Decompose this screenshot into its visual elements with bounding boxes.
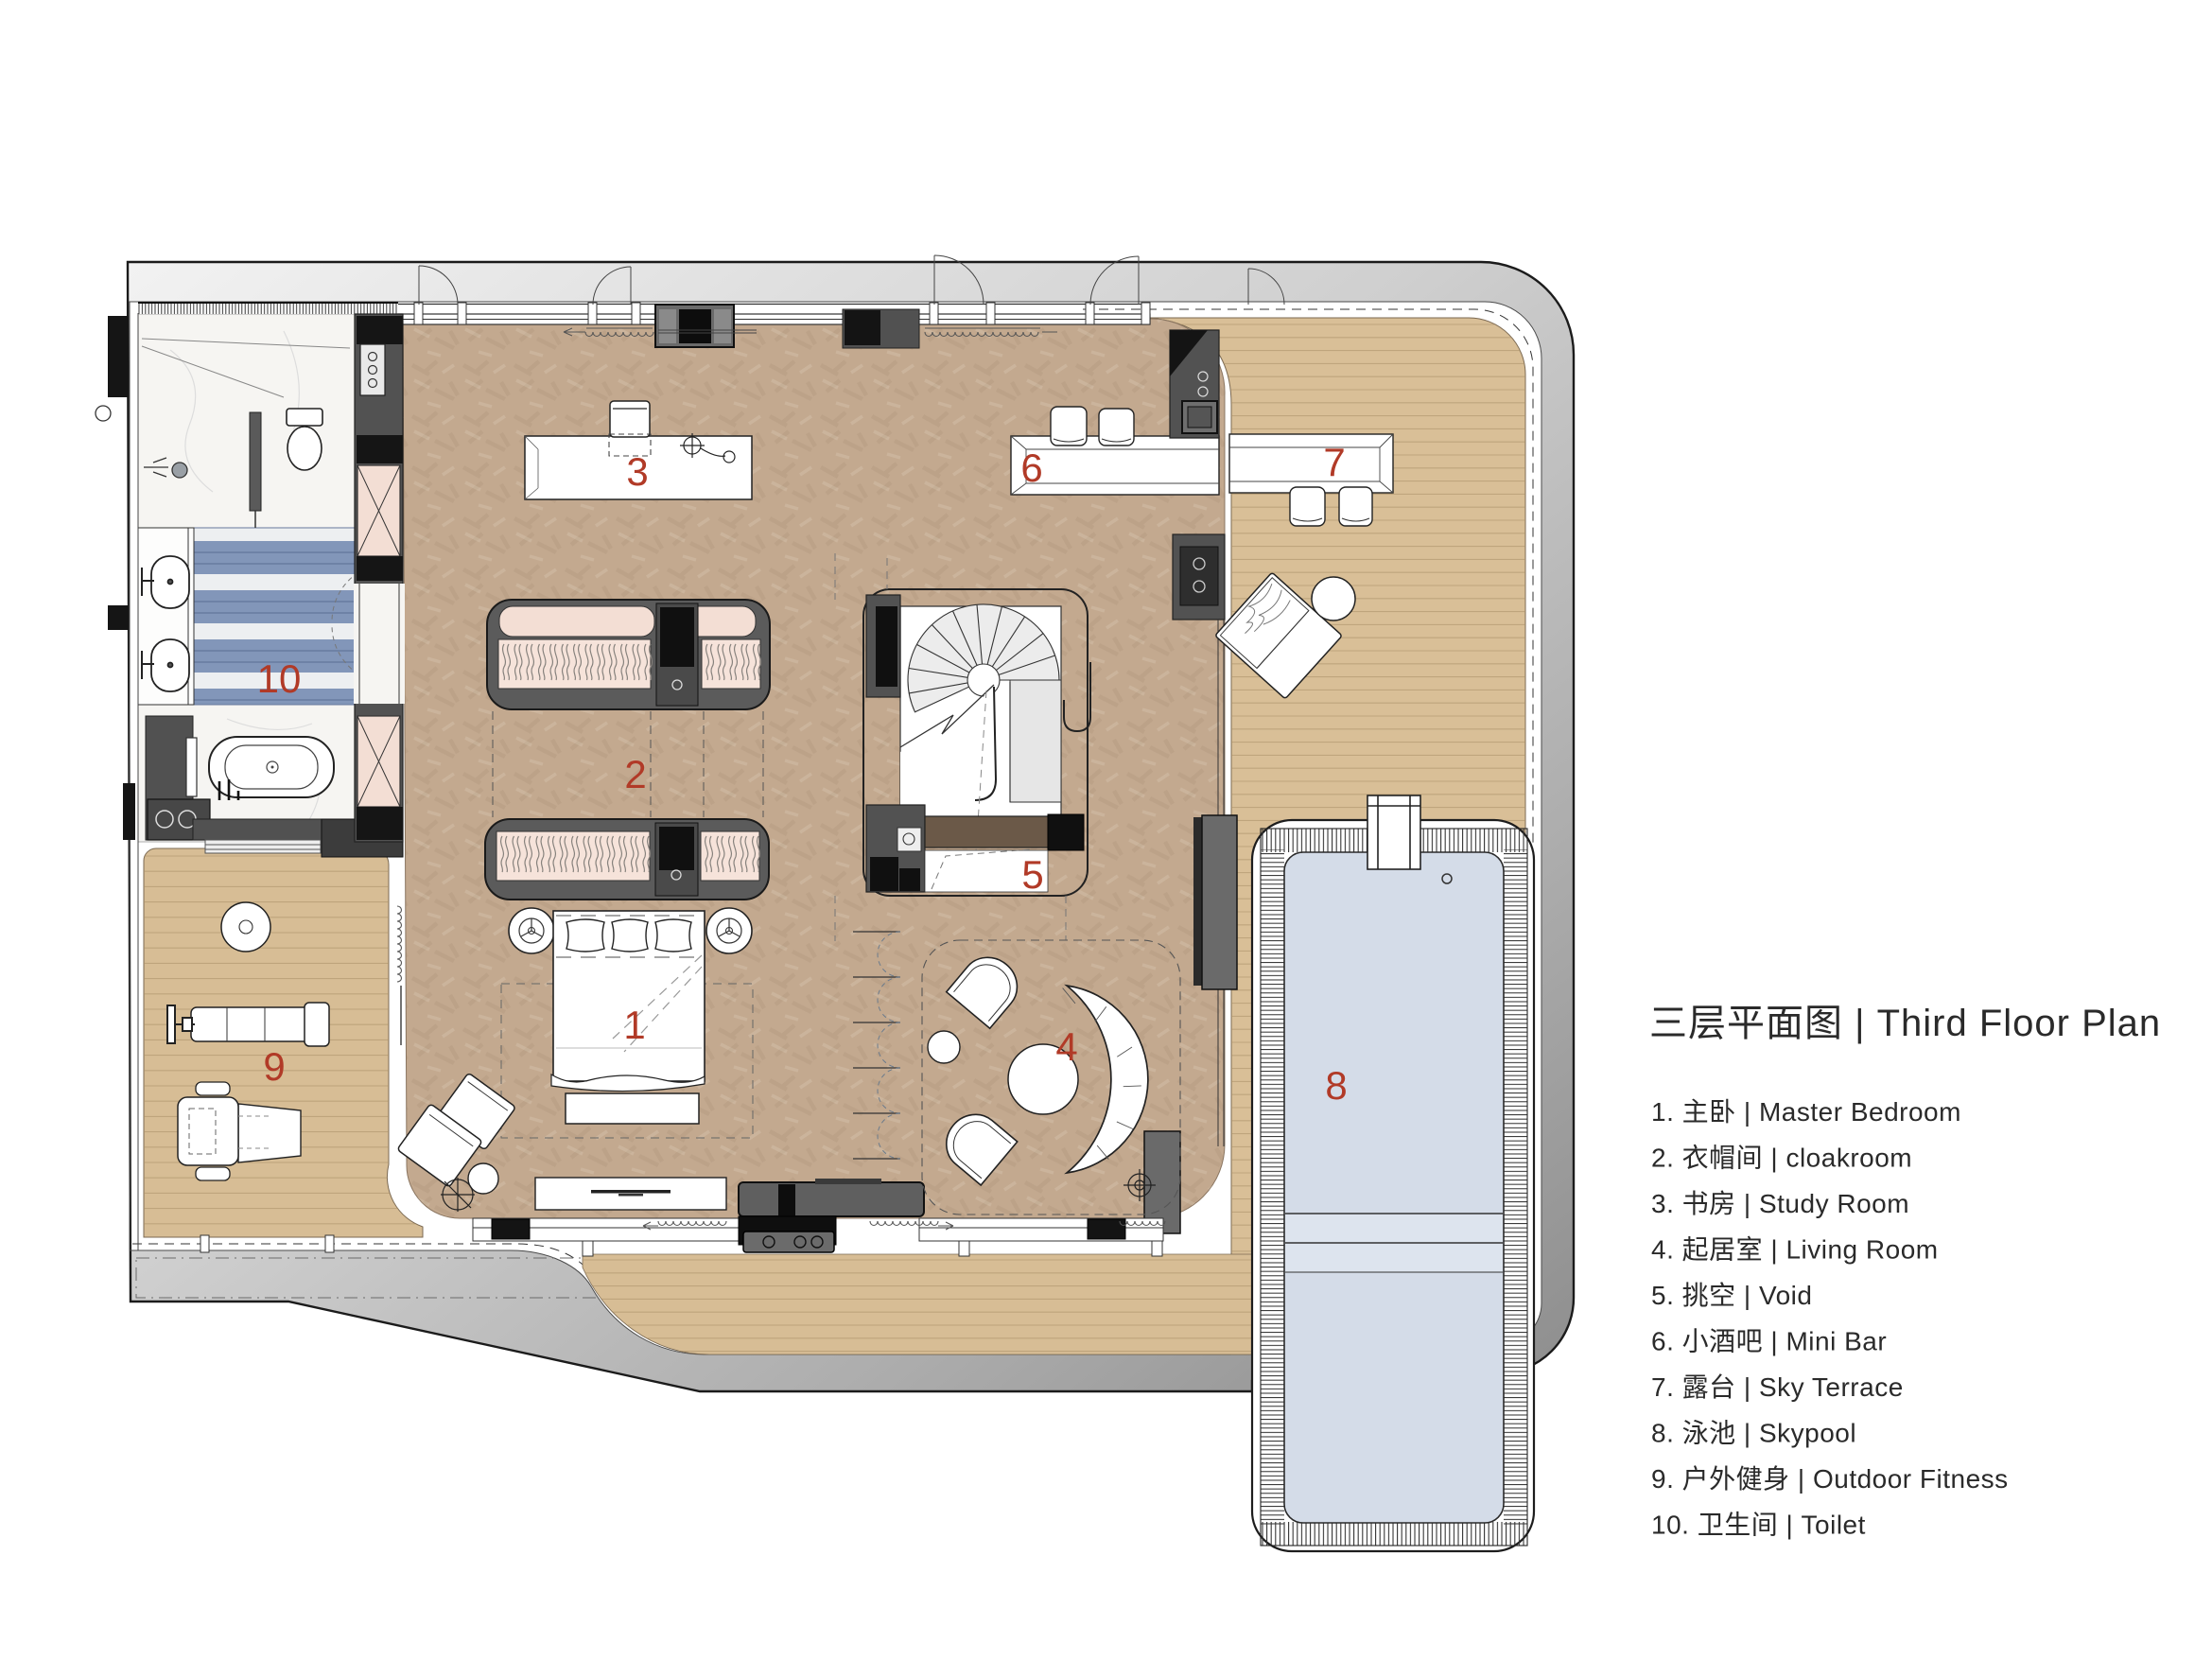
svg-text:3: 3 — [626, 449, 648, 494]
svg-text:5: 5 — [1021, 852, 1043, 897]
svg-text:1: 1 — [623, 1003, 645, 1047]
svg-text:10: 10 — [257, 656, 302, 701]
svg-text:3. 书房 | Study Room: 3. 书房 | Study Room — [1651, 1189, 1909, 1218]
svg-text:7. 露台 | Sky Terrace: 7. 露台 | Sky Terrace — [1651, 1372, 1904, 1402]
svg-text:5. 挑空 | Void: 5. 挑空 | Void — [1651, 1281, 1812, 1310]
svg-text:4. 起居室 | Living Room: 4. 起居室 | Living Room — [1651, 1235, 1939, 1265]
svg-text:8: 8 — [1325, 1063, 1347, 1108]
svg-text:9: 9 — [263, 1044, 285, 1089]
svg-text:10. 卫生间 | Toilet: 10. 卫生间 | Toilet — [1651, 1511, 1866, 1540]
svg-text:6: 6 — [1020, 446, 1042, 490]
svg-text:7: 7 — [1323, 440, 1345, 484]
svg-text:2. 衣帽间 | cloakroom: 2. 衣帽间 | cloakroom — [1651, 1144, 1912, 1173]
svg-text:8. 泳池 | Skypool: 8. 泳池 | Skypool — [1651, 1419, 1856, 1448]
svg-text:9. 户外健身 | Outdoor Fitness: 9. 户外健身 | Outdoor Fitness — [1651, 1464, 2009, 1494]
svg-text:1. 主卧 | Master Bedroom: 1. 主卧 | Master Bedroom — [1651, 1097, 1961, 1127]
svg-text:三层平面图 | Third Floor Plan: 三层平面图 | Third Floor Plan — [1649, 1003, 2161, 1044]
svg-text:2: 2 — [624, 752, 646, 796]
svg-text:6. 小酒吧 | Mini Bar: 6. 小酒吧 | Mini Bar — [1651, 1327, 1887, 1356]
svg-text:4: 4 — [1055, 1024, 1077, 1069]
